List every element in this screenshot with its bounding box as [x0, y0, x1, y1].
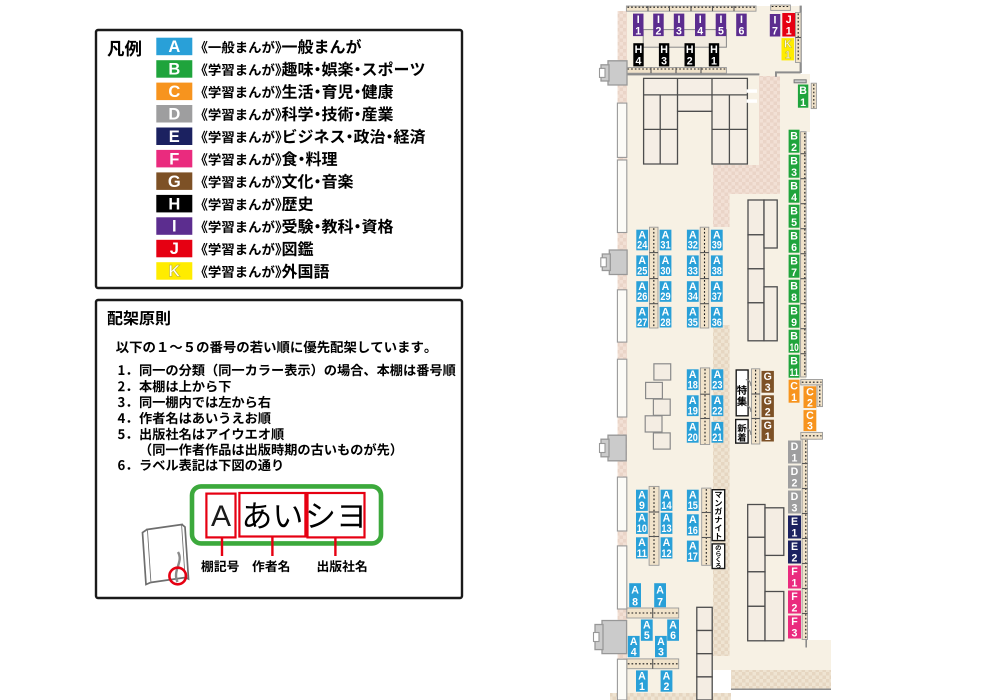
- svg-text:D: D: [168, 106, 180, 124]
- svg-text:F: F: [791, 591, 798, 603]
- svg-text:4: 4: [636, 56, 642, 68]
- svg-text:B: B: [790, 230, 798, 242]
- svg-text:B: B: [790, 330, 798, 342]
- svg-text:1: 1: [792, 453, 798, 465]
- svg-text:I: I: [720, 14, 723, 26]
- svg-text:7: 7: [791, 267, 797, 279]
- svg-text:F: F: [791, 566, 798, 578]
- svg-text:10: 10: [789, 342, 798, 354]
- svg-text:I: I: [699, 14, 702, 26]
- svg-text:35: 35: [688, 317, 698, 329]
- svg-text:A: A: [631, 584, 639, 596]
- svg-text:3: 3: [792, 628, 798, 640]
- svg-text:25: 25: [637, 265, 647, 277]
- svg-text:34: 34: [688, 291, 698, 303]
- svg-text:B: B: [790, 305, 798, 317]
- svg-text:H: H: [686, 44, 694, 56]
- svg-text:H: H: [710, 44, 718, 56]
- svg-text:8: 8: [632, 596, 638, 608]
- svg-text:3: 3: [792, 503, 798, 515]
- svg-text:15: 15: [688, 500, 698, 512]
- svg-text:6: 6: [670, 630, 676, 642]
- svg-text:23: 23: [712, 379, 722, 391]
- svg-text:2: 2: [664, 681, 670, 693]
- svg-text:3: 3: [661, 56, 667, 68]
- svg-text:2: 2: [791, 142, 797, 154]
- svg-text:1: 1: [639, 681, 645, 693]
- svg-text:16: 16: [688, 525, 698, 537]
- svg-text:1: 1: [800, 97, 806, 109]
- svg-text:20: 20: [688, 432, 698, 444]
- svg-text:6: 6: [739, 25, 745, 37]
- svg-text:19: 19: [688, 405, 698, 417]
- svg-text:B: B: [799, 85, 807, 97]
- svg-text:F: F: [169, 150, 179, 168]
- svg-text:2: 2: [687, 56, 693, 68]
- svg-text:7: 7: [657, 596, 663, 608]
- svg-text:11: 11: [637, 548, 647, 560]
- svg-text:11: 11: [789, 367, 798, 379]
- svg-text:I: I: [678, 14, 681, 26]
- svg-text:37: 37: [712, 291, 722, 303]
- svg-text:E: E: [791, 541, 798, 553]
- svg-text:26: 26: [637, 291, 647, 303]
- svg-text:B: B: [790, 130, 798, 142]
- svg-text:J: J: [170, 240, 179, 258]
- svg-text:33: 33: [688, 265, 698, 277]
- svg-text:I: I: [740, 14, 743, 26]
- svg-text:I: I: [172, 218, 177, 236]
- svg-text:9: 9: [639, 500, 645, 512]
- svg-text:D: D: [791, 491, 799, 503]
- svg-text:E: E: [791, 516, 798, 528]
- svg-text:A: A: [168, 38, 180, 56]
- svg-text:I: I: [637, 14, 640, 26]
- svg-text:B: B: [168, 61, 180, 79]
- svg-text:5: 5: [644, 630, 650, 642]
- svg-text:A: A: [656, 584, 664, 596]
- svg-text:1: 1: [635, 25, 641, 37]
- svg-text:32: 32: [688, 240, 698, 252]
- svg-text:10: 10: [637, 523, 647, 535]
- svg-text:7: 7: [772, 26, 778, 38]
- svg-text:18: 18: [688, 379, 698, 391]
- svg-text:I: I: [657, 14, 660, 26]
- svg-text:5: 5: [718, 25, 724, 37]
- svg-text:14: 14: [661, 500, 671, 512]
- svg-text:5: 5: [791, 217, 797, 229]
- svg-text:A: A: [211, 500, 231, 533]
- svg-text:2: 2: [807, 397, 813, 409]
- svg-text:36: 36: [712, 317, 722, 329]
- svg-text:2: 2: [656, 25, 662, 37]
- svg-text:3: 3: [791, 167, 797, 179]
- svg-text:4: 4: [631, 647, 637, 659]
- svg-text:1: 1: [791, 392, 797, 404]
- svg-text:27: 27: [637, 317, 647, 329]
- svg-text:3: 3: [658, 647, 664, 659]
- svg-text:3: 3: [807, 420, 813, 432]
- svg-text:H: H: [660, 44, 668, 56]
- svg-text:C: C: [790, 380, 798, 392]
- svg-text:9: 9: [791, 317, 797, 329]
- svg-text:22: 22: [712, 405, 722, 417]
- svg-text:4: 4: [697, 25, 703, 37]
- svg-text:B: B: [790, 255, 798, 267]
- svg-text:B: B: [790, 155, 798, 167]
- svg-text:1: 1: [786, 26, 792, 38]
- svg-text:2: 2: [792, 603, 798, 615]
- svg-text:E: E: [169, 128, 180, 146]
- svg-text:12: 12: [661, 548, 671, 560]
- svg-text:3: 3: [765, 382, 771, 394]
- svg-text:21: 21: [712, 432, 722, 444]
- svg-text:C: C: [168, 83, 180, 101]
- svg-text:2: 2: [765, 406, 771, 418]
- svg-text:H: H: [168, 195, 180, 213]
- svg-text:D: D: [791, 466, 799, 478]
- svg-text:B: B: [790, 205, 798, 217]
- svg-text:B: B: [790, 280, 798, 292]
- svg-text:17: 17: [688, 551, 698, 563]
- svg-text:24: 24: [637, 240, 647, 252]
- svg-text:30: 30: [660, 265, 670, 277]
- svg-text:29: 29: [660, 291, 670, 303]
- svg-text:39: 39: [712, 240, 722, 252]
- svg-text:28: 28: [660, 317, 670, 329]
- svg-text:3: 3: [676, 25, 682, 37]
- svg-text:K: K: [168, 263, 180, 281]
- svg-text:1: 1: [785, 50, 791, 62]
- svg-text:B: B: [790, 180, 798, 192]
- svg-text:1: 1: [792, 578, 798, 590]
- svg-text:F: F: [791, 616, 798, 628]
- svg-text:2: 2: [792, 478, 798, 490]
- svg-text:I: I: [774, 14, 777, 26]
- svg-text:D: D: [791, 441, 799, 453]
- svg-text:31: 31: [660, 240, 670, 252]
- svg-text:13: 13: [661, 523, 671, 535]
- svg-text:1: 1: [792, 528, 798, 540]
- svg-text:B: B: [790, 355, 798, 367]
- svg-text:1: 1: [765, 431, 771, 443]
- svg-text:G: G: [168, 173, 181, 191]
- svg-text:H: H: [635, 44, 643, 56]
- svg-text:38: 38: [712, 265, 722, 277]
- svg-text:6: 6: [791, 242, 797, 254]
- svg-text:1: 1: [711, 56, 717, 68]
- svg-text:2: 2: [792, 553, 798, 565]
- svg-text:8: 8: [791, 292, 797, 304]
- svg-text:4: 4: [791, 192, 797, 204]
- svg-text:J: J: [786, 14, 792, 26]
